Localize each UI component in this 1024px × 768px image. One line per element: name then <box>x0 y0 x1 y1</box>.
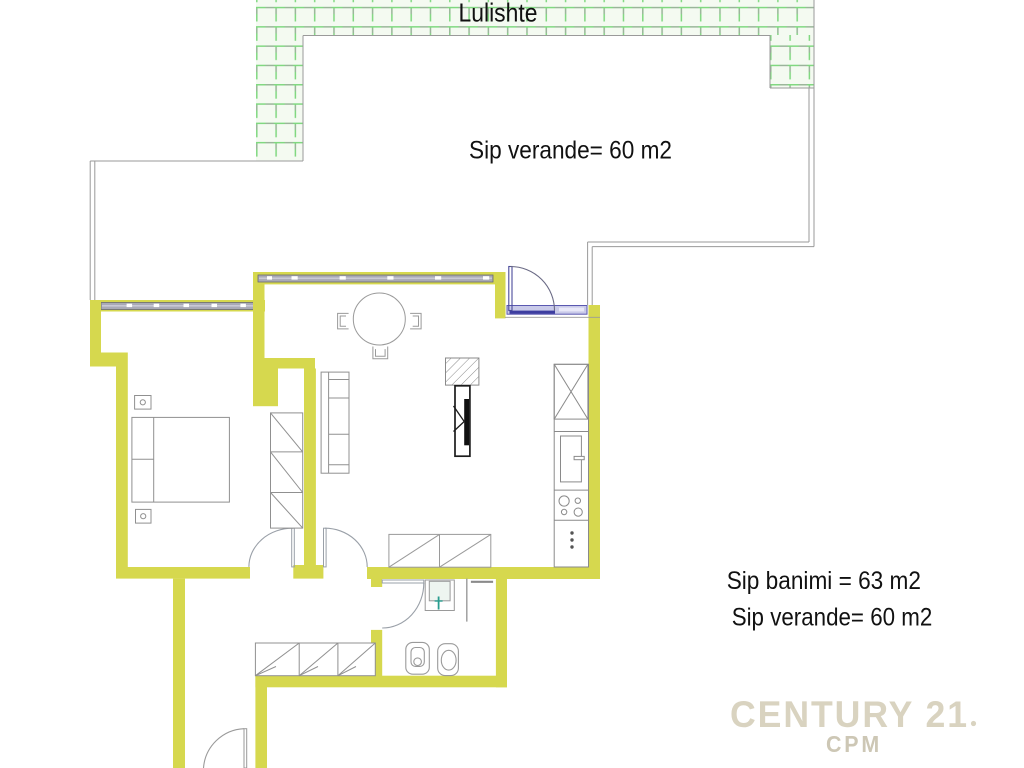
svg-text:Lulishte: Lulishte <box>459 0 538 28</box>
svg-text:CPM: CPM <box>826 731 882 757</box>
svg-text:Sip verande= 60 m2: Sip verande= 60 m2 <box>732 604 933 632</box>
svg-text:Sip verande= 60 m2: Sip verande= 60 m2 <box>469 137 672 165</box>
svg-text:CENTURY 21: CENTURY 21 <box>730 694 969 735</box>
svg-text:Sip banimi = 63 m2: Sip banimi = 63 m2 <box>727 567 921 595</box>
